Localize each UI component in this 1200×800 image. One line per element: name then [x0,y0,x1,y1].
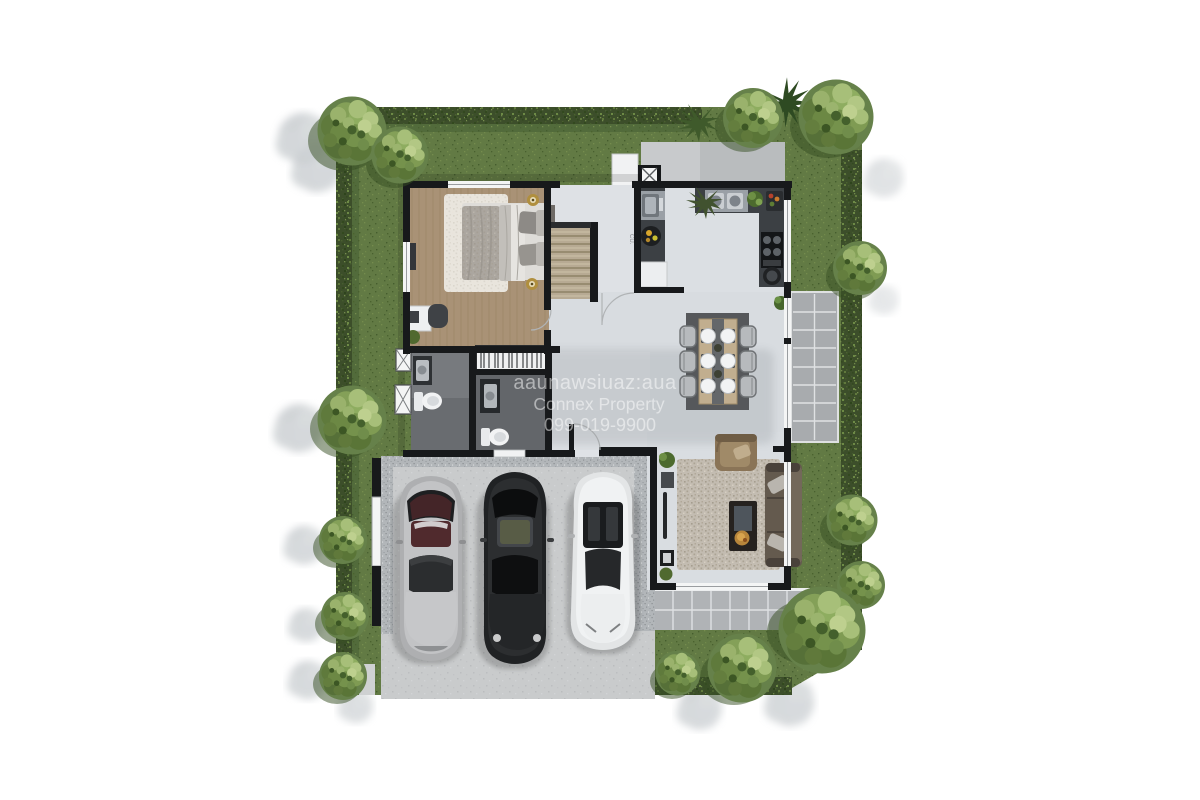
svg-text:CU.: CU. [628,234,634,245]
svg-text:099-019-9900: 099-019-9900 [544,415,656,435]
svg-text:aaunawsiuaz:aua: aaunawsiuaz:aua [513,372,677,394]
svg-text:Connex Property: Connex Property [533,394,665,414]
